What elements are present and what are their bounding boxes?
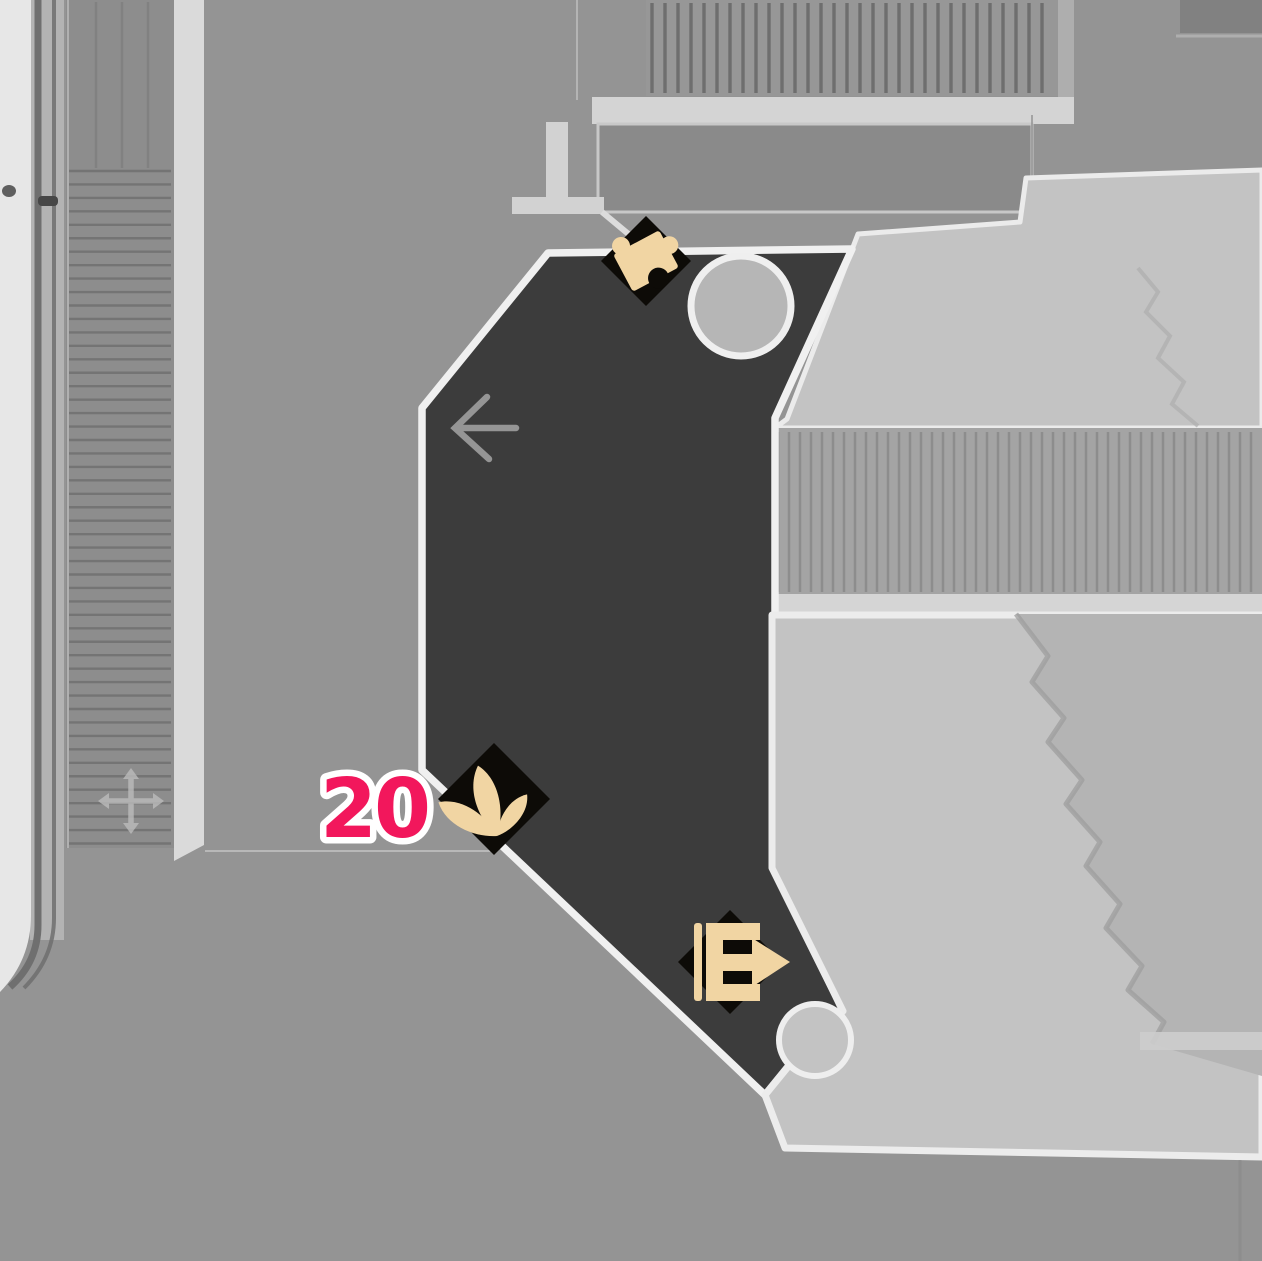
corner-panel [1180,0,1262,33]
step-post [546,122,568,202]
pillar-circle [691,256,791,356]
stair-edge-highlight [1140,1032,1262,1050]
wall-post [174,0,204,861]
pillar-circle [779,1004,851,1076]
recessed-panel [598,124,1032,212]
map-canvas: 20 [0,0,1262,1261]
wall-mark [2,185,16,197]
stairs-band [772,428,1262,614]
wall-mark [38,196,58,206]
left-wall [0,0,31,992]
railing [646,0,1074,98]
step-ledge [512,197,604,214]
game-map-view: 20 [0,0,1262,1261]
escalator [66,0,174,848]
ledge [592,97,1074,124]
marker-count-label: 20 [320,762,428,857]
stairs-landing [772,594,1262,614]
